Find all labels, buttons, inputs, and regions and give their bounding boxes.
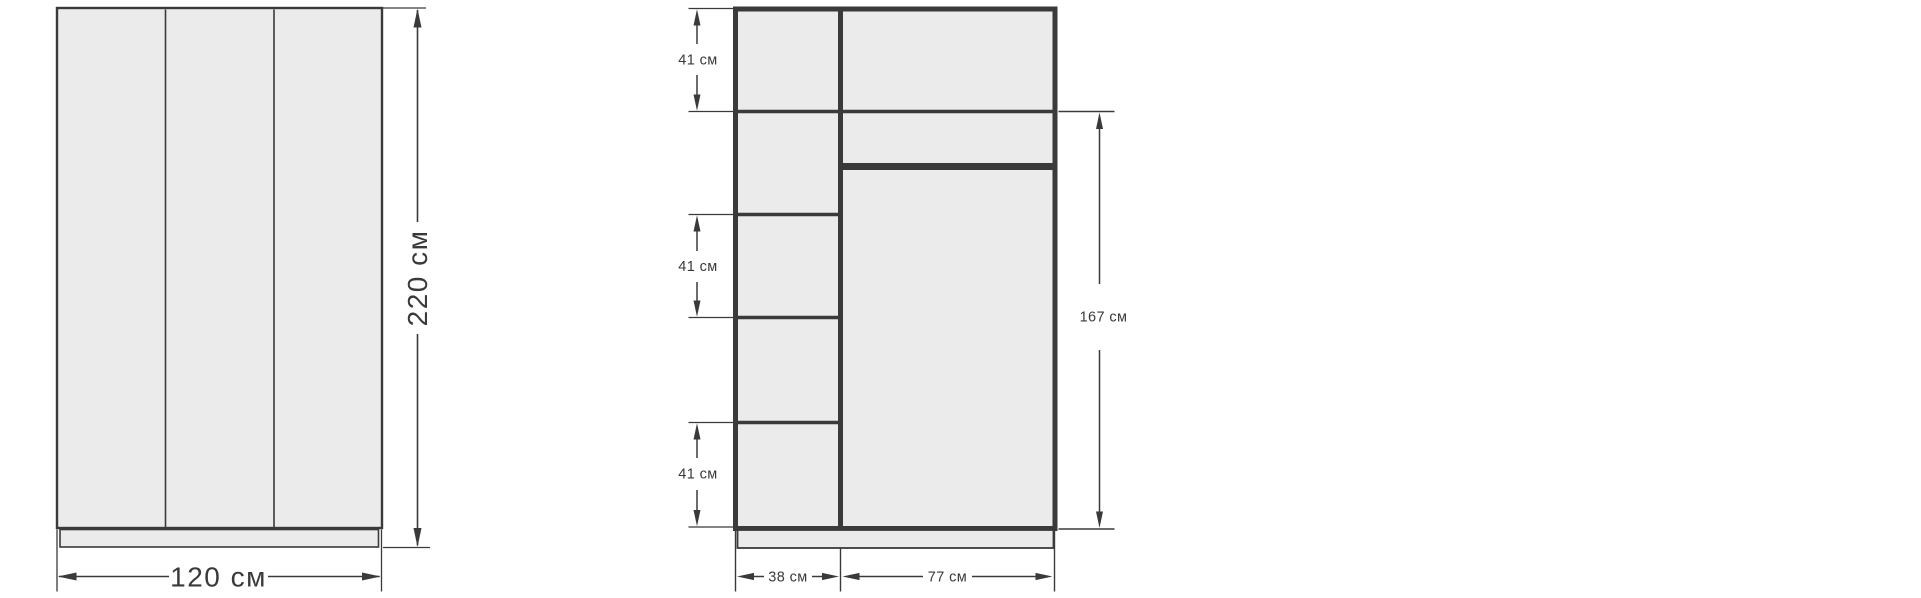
front-body xyxy=(57,8,382,528)
arrowhead-right-icon xyxy=(1036,573,1053,580)
arrowhead-down-icon xyxy=(694,95,701,111)
shelf-dimensions: 41 см 41 см 41 см xyxy=(678,9,734,528)
arrowhead-right-icon xyxy=(822,573,839,580)
left-column-width-label: 38 см xyxy=(768,570,807,586)
front-view: 220 см 120 см xyxy=(57,8,433,593)
hanging-height-dimension: 167 см xyxy=(1059,112,1128,530)
hanging-height-label: 167 см xyxy=(1080,310,1128,326)
arrowhead-up-icon xyxy=(414,9,422,28)
shelf-dimension-label: 41 см xyxy=(678,53,717,69)
width-dimension-label: 120 см xyxy=(170,562,267,593)
arrowhead-down-icon xyxy=(414,528,422,547)
interior-view: 41 см 41 см 41 см xyxy=(678,9,1127,592)
right-column-width-label: 77 см xyxy=(928,570,967,586)
arrowhead-down-icon xyxy=(694,510,701,526)
wardrobe-dimensions-diagram: 220 см 120 см xyxy=(0,0,1921,598)
arrowhead-left-icon xyxy=(843,573,860,580)
shelf-dimension-2: 41 см xyxy=(678,215,717,316)
shelf-dimension-label: 41 см xyxy=(678,467,717,483)
interior-plinth xyxy=(738,530,1054,548)
interior-body xyxy=(736,9,1056,529)
height-dimension-label: 220 см xyxy=(402,230,433,327)
arrowhead-down-icon xyxy=(1096,512,1103,529)
arrowhead-down-icon xyxy=(694,301,701,317)
arrowhead-right-icon xyxy=(362,573,381,581)
shelf-dimension-1: 41 см xyxy=(678,9,717,111)
arrowhead-left-icon xyxy=(58,573,77,581)
shelf-dimension-label: 41 см xyxy=(678,259,717,275)
height-dimension: 220 см xyxy=(383,8,433,548)
diagram-canvas: 220 см 120 см xyxy=(0,0,1921,598)
shelf-dimension-3: 41 см xyxy=(678,423,717,526)
front-plinth xyxy=(60,530,379,548)
left-column-width-dimension: 38 см xyxy=(737,570,839,586)
right-column-width-dimension: 77 см xyxy=(843,570,1053,586)
